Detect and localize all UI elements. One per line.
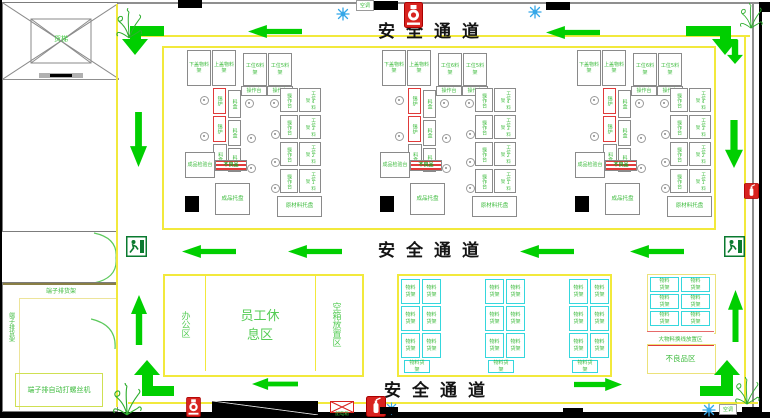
stool-circle-icon	[442, 134, 451, 143]
solder-pot: 锡炉	[213, 88, 226, 114]
snowflake-icon	[336, 6, 350, 20]
stool-circle-icon	[200, 132, 209, 141]
rack-ws3: 工位3料架	[299, 115, 321, 139]
storage-rack-box: 物料货架	[569, 306, 588, 331]
stool-circle-icon	[590, 96, 599, 105]
storage-group: 物料货架物料货架物料货架物料货架物料货架物料货架物料货架	[569, 279, 609, 373]
office-rest-zone: 办公区 员工休息区 空箱放置区	[163, 274, 364, 377]
reject-strip: 不良品	[215, 160, 247, 171]
flow-arrow-left	[182, 245, 236, 258]
crossed-box-icon	[330, 398, 354, 410]
rack-ws2: 工位2料架	[299, 142, 321, 166]
rack-ws5: 工位5料架	[658, 53, 682, 86]
zone-divider	[315, 276, 316, 371]
flow-arrow-left	[630, 245, 684, 258]
waste-bin	[380, 196, 394, 212]
waste-bin	[575, 196, 589, 212]
inspection-table: 成品检验台	[185, 152, 215, 178]
inner-line	[19, 298, 117, 299]
exit-running-man-icon	[126, 236, 147, 257]
storage-rack-box: 物料货架	[485, 306, 504, 331]
rack-ws6: 工位6料架	[633, 53, 657, 86]
pallet-raw: 原材料托盘	[277, 196, 322, 217]
changeover-rack-zone: 物料货架物料货架物料货架物料货架物料货架物料货架	[647, 274, 716, 334]
storage-rack-box: 物料货架	[401, 306, 420, 331]
storage-group: 物料货架物料货架物料货架物料货架物料货架物料货架	[650, 277, 710, 326]
rack-bottom-cover: 下盖物料架	[577, 50, 601, 86]
flow-arrow-left	[252, 378, 298, 390]
turn-arrow-down	[686, 20, 744, 56]
aisle-line-left	[116, 4, 118, 407]
storage-rack-box: 物料货架	[422, 279, 441, 304]
storage-rack-box: 物料货架	[506, 306, 525, 331]
stool-circle-icon	[590, 132, 599, 141]
rack-ws4: 工位4料架	[494, 88, 516, 112]
column-block	[742, 407, 762, 415]
flow-arrow-left	[520, 245, 574, 258]
aisle-line-right	[744, 35, 746, 403]
extinguisher-icon	[744, 181, 759, 201]
op-station: 操作台	[280, 115, 298, 139]
rack-ws1: 工位1料架	[299, 169, 321, 193]
op-station: 操作台	[670, 142, 688, 166]
stool-circle-icon	[442, 164, 451, 173]
storage-group: 物料货架物料货架物料货架物料货架物料货架物料货架物料货架	[401, 279, 441, 373]
rest-area-label: 员工休息区	[237, 302, 283, 346]
hydrant-icon	[184, 397, 203, 417]
op-station: 操作台	[280, 88, 298, 112]
inspection-table: 成品检验台	[380, 152, 410, 178]
rack-ws2: 工位2料架	[494, 142, 516, 166]
stool-circle-icon	[637, 164, 646, 173]
electrical-panel	[212, 401, 318, 415]
ac-label: 空调	[719, 404, 737, 415]
storage-rack-box: 物料货架	[572, 360, 598, 373]
wall-top	[118, 2, 770, 4]
rack-ws3: 工位3料架	[689, 115, 711, 139]
stool-circle-icon	[247, 134, 256, 143]
op-station: 操作台	[670, 88, 688, 112]
pallet-finished: 成品托盘	[215, 183, 250, 215]
storage-rack-box: 物料货架	[681, 294, 710, 309]
rack-ws4: 工位4料架	[689, 88, 711, 112]
elevator-label: 货梯	[41, 31, 81, 47]
stool-circle-icon	[637, 134, 646, 143]
op-station: 操作台	[280, 142, 298, 166]
stool-circle-icon	[247, 164, 256, 173]
stool-circle-icon	[466, 158, 475, 167]
elevator-room: 货梯	[2, 2, 118, 232]
rack-top-cover: 上盖物料架	[212, 50, 236, 86]
storage-rack-box: 物料货架	[485, 279, 504, 304]
production-line-cluster-2: 下盖物料架 上盖物料架 工位6料架 工位5料架 操作台 操作台 锡炉 锡炉 料盒…	[380, 50, 530, 218]
op-station: 操作台	[436, 86, 462, 96]
rack-ws6: 工位6料架	[243, 53, 267, 86]
stool-circle-icon	[660, 99, 669, 108]
column-block	[546, 2, 570, 10]
plant-icon	[112, 383, 142, 416]
bin-rack: 料盒	[423, 90, 436, 118]
rack-ws5: 工位5料架	[463, 53, 487, 86]
snowflake-icon	[702, 402, 716, 416]
rack-ws3: 工位3料架	[494, 115, 516, 139]
storage-rack-box: 物料货架	[401, 333, 420, 358]
production-line-cluster-3: 下盖物料架 上盖物料架 工位6料架 工位5料架 操作台 操作台 锡炉 锡炉 料盒…	[575, 50, 725, 218]
stool-circle-icon	[395, 96, 404, 105]
door-swing-arc	[92, 232, 118, 284]
bin-rack: 料盒	[618, 120, 631, 146]
rack-ws1: 工位1料架	[494, 169, 516, 193]
solder-pot: 锡炉	[603, 88, 616, 114]
stool-circle-icon	[466, 130, 475, 139]
flow-arrow-down	[725, 120, 743, 168]
pallet-finished: 成品托盘	[410, 183, 445, 215]
flow-arrow-up	[131, 295, 147, 345]
storage-rack-box: 物料货架	[422, 333, 441, 358]
rack-bottom-cover: 下盖物料架	[382, 50, 406, 86]
pallet-finished: 成品托盘	[605, 183, 640, 215]
rack-ws6: 工位6料架	[438, 53, 462, 86]
rack-ws1: 工位1料架	[689, 169, 711, 193]
column-block	[178, 0, 202, 8]
flow-arrow-right	[574, 378, 622, 391]
stool-circle-icon	[635, 99, 644, 108]
storage-rack-box: 物料货架	[590, 279, 609, 304]
column-block	[563, 408, 583, 415]
stool-circle-icon	[200, 96, 209, 105]
production-line-cluster-1: 下盖物料架 上盖物料架 工位6料架 工位5料架 操作台 操作台 锡炉 锡炉 料盒…	[185, 50, 335, 218]
rack-bottom-cover: 下盖物料架	[187, 50, 211, 86]
storage-rack-box: 物料货架	[650, 277, 679, 292]
solder-pot: 锡炉	[408, 116, 421, 142]
bin-rack: 料盒	[423, 120, 436, 146]
op-station: 操作台	[670, 115, 688, 139]
stool-circle-icon	[270, 99, 279, 108]
rack-top-cover: 上盖物料架	[407, 50, 431, 86]
storage-rack-box: 物料货架	[404, 360, 430, 373]
op-station: 操作台	[475, 169, 493, 193]
pallet-raw: 原材料托盘	[472, 196, 517, 217]
stool-circle-icon	[661, 184, 670, 193]
room-divider	[3, 79, 119, 80]
stool-circle-icon	[466, 184, 475, 193]
storage-rack-box: 物料货架	[681, 311, 710, 326]
op-station: 操作台	[631, 86, 657, 96]
empty-box-area-label: 空箱放置区	[323, 286, 349, 362]
waste-bin	[185, 196, 199, 212]
stool-circle-icon	[661, 130, 670, 139]
storage-rack-box: 物料货架	[650, 311, 679, 326]
stool-circle-icon	[440, 99, 449, 108]
solder-pot: 锡炉	[213, 116, 226, 142]
op-station: 操作台	[670, 169, 688, 193]
wall-right-outer	[759, 2, 762, 412]
office-area-label: 办公区	[174, 293, 196, 355]
storage-rack-box: 物料货架	[422, 306, 441, 331]
storage-rack-box: 物料货架	[590, 306, 609, 331]
material-storage-zone: 物料货架物料货架物料货架物料货架物料货架物料货架物料货架 物料货架物料货架物料货…	[397, 274, 612, 377]
op-station: 操作台	[475, 115, 493, 139]
flow-arrow-left	[546, 26, 600, 39]
stool-circle-icon	[465, 99, 474, 108]
reject-strip: 不良品	[410, 160, 442, 171]
bin-rack: 料盒	[228, 90, 241, 118]
factory-floor-plan: 货梯 端子排货架 端子排货架 端子排自动打螺丝机 安全通道 安全通道 安全通道 …	[0, 0, 770, 418]
wall-right-inner	[752, 2, 754, 412]
storage-rack-box: 物料货架	[488, 360, 514, 373]
op-station: 操作台	[475, 88, 493, 112]
flow-arrow-up	[728, 290, 743, 342]
op-station: 操作台	[475, 142, 493, 166]
door-swing-arc	[91, 317, 117, 351]
solder-pot: 锡炉	[408, 88, 421, 114]
storage-rack-box: 物料货架	[569, 279, 588, 304]
aisle-label-top: 安全通道	[378, 17, 490, 42]
storage-rack-box: 物料货架	[506, 333, 525, 358]
terminal-room: 端子排货架 端子排货架 端子排自动打螺丝机	[2, 282, 118, 412]
solder-pot: 锡炉	[603, 116, 616, 142]
storage-rack-box: 物料货架	[401, 279, 420, 304]
bin-rack: 料盒	[618, 90, 631, 118]
stool-circle-icon	[271, 158, 280, 167]
screw-machine: 端子排自动打螺丝机	[15, 373, 103, 407]
stool-circle-icon	[245, 99, 254, 108]
rack-ws4: 工位4料架	[299, 88, 321, 112]
storage-rack-box: 物料货架	[506, 279, 525, 304]
plant-icon	[116, 8, 142, 40]
storage-rack-box: 物料货架	[590, 333, 609, 358]
flow-arrow-left	[288, 245, 342, 258]
ac-label: 空调	[356, 0, 374, 11]
storage-group: 物料货架物料货架物料货架物料货架物料货架物料货架物料货架	[485, 279, 525, 373]
storage-rack-box: 物料货架	[485, 333, 504, 358]
hydrant-icon	[404, 2, 423, 28]
terminal-rack-label: 端子排货架	[23, 286, 99, 295]
column-block	[380, 407, 398, 414]
aisle-label-bottom: 安全通道	[384, 376, 496, 401]
power-box: 配电箱	[330, 398, 354, 417]
aisle-label-middle: 安全通道	[378, 236, 490, 261]
storage-rack-box: 物料货架	[681, 277, 710, 292]
snowflake-icon	[528, 4, 542, 18]
op-station: 操作台	[280, 169, 298, 193]
rack-ws5: 工位5料架	[268, 53, 292, 86]
room-top-line	[3, 283, 117, 285]
plant-icon	[737, 3, 765, 29]
exit-running-man-icon	[724, 236, 745, 257]
inspection-table: 成品检验台	[575, 152, 605, 178]
terminal-rack-side-label: 端子排货架	[6, 299, 16, 355]
power-box-label: 配电箱	[330, 410, 354, 417]
stool-circle-icon	[271, 184, 280, 193]
stool-circle-icon	[271, 130, 280, 139]
plant-icon	[732, 377, 762, 405]
bin-rack: 料盒	[228, 120, 241, 146]
storage-rack-box: 物料货架	[569, 333, 588, 358]
stool-circle-icon	[661, 158, 670, 167]
rack-top-cover: 上盖物料架	[602, 50, 626, 86]
op-station: 操作台	[241, 86, 267, 96]
stool-circle-icon	[395, 132, 404, 141]
flow-arrow-down	[130, 112, 147, 167]
reject-strip: 不良品	[605, 160, 637, 171]
zone-divider	[205, 276, 206, 371]
storage-rack-box: 物料货架	[650, 294, 679, 309]
rack-ws2: 工位2料架	[689, 142, 711, 166]
pallet-raw: 原材料托盘	[667, 196, 712, 217]
